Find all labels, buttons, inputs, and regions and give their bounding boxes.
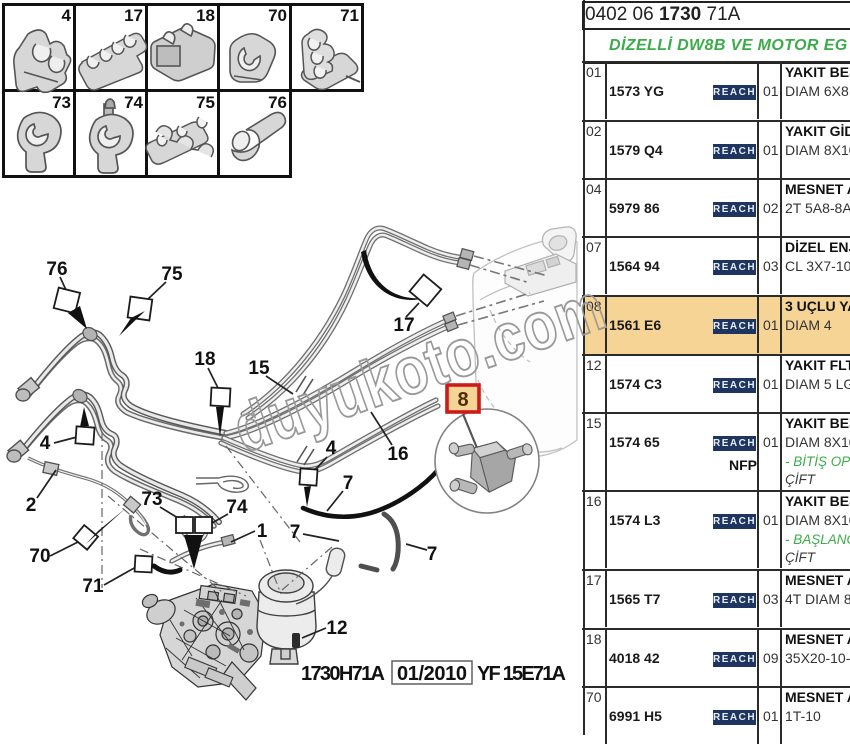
svg-text:duyukoto.com: duyukoto.com [224, 268, 615, 467]
